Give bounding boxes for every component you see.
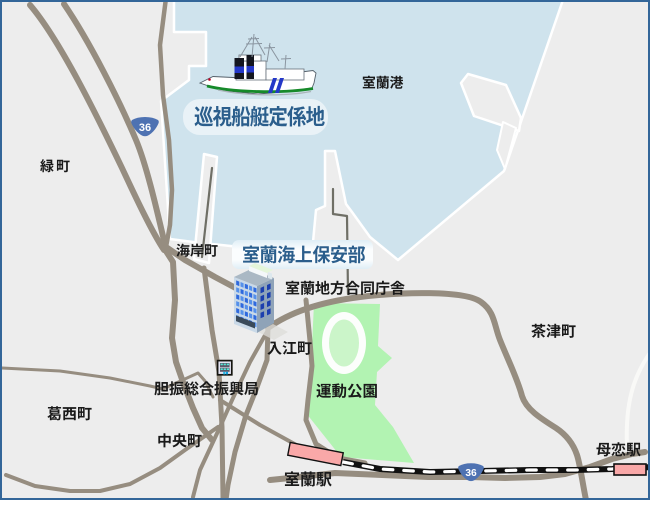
svg-text:36: 36 [139,122,151,134]
svg-text:36: 36 [465,468,477,479]
